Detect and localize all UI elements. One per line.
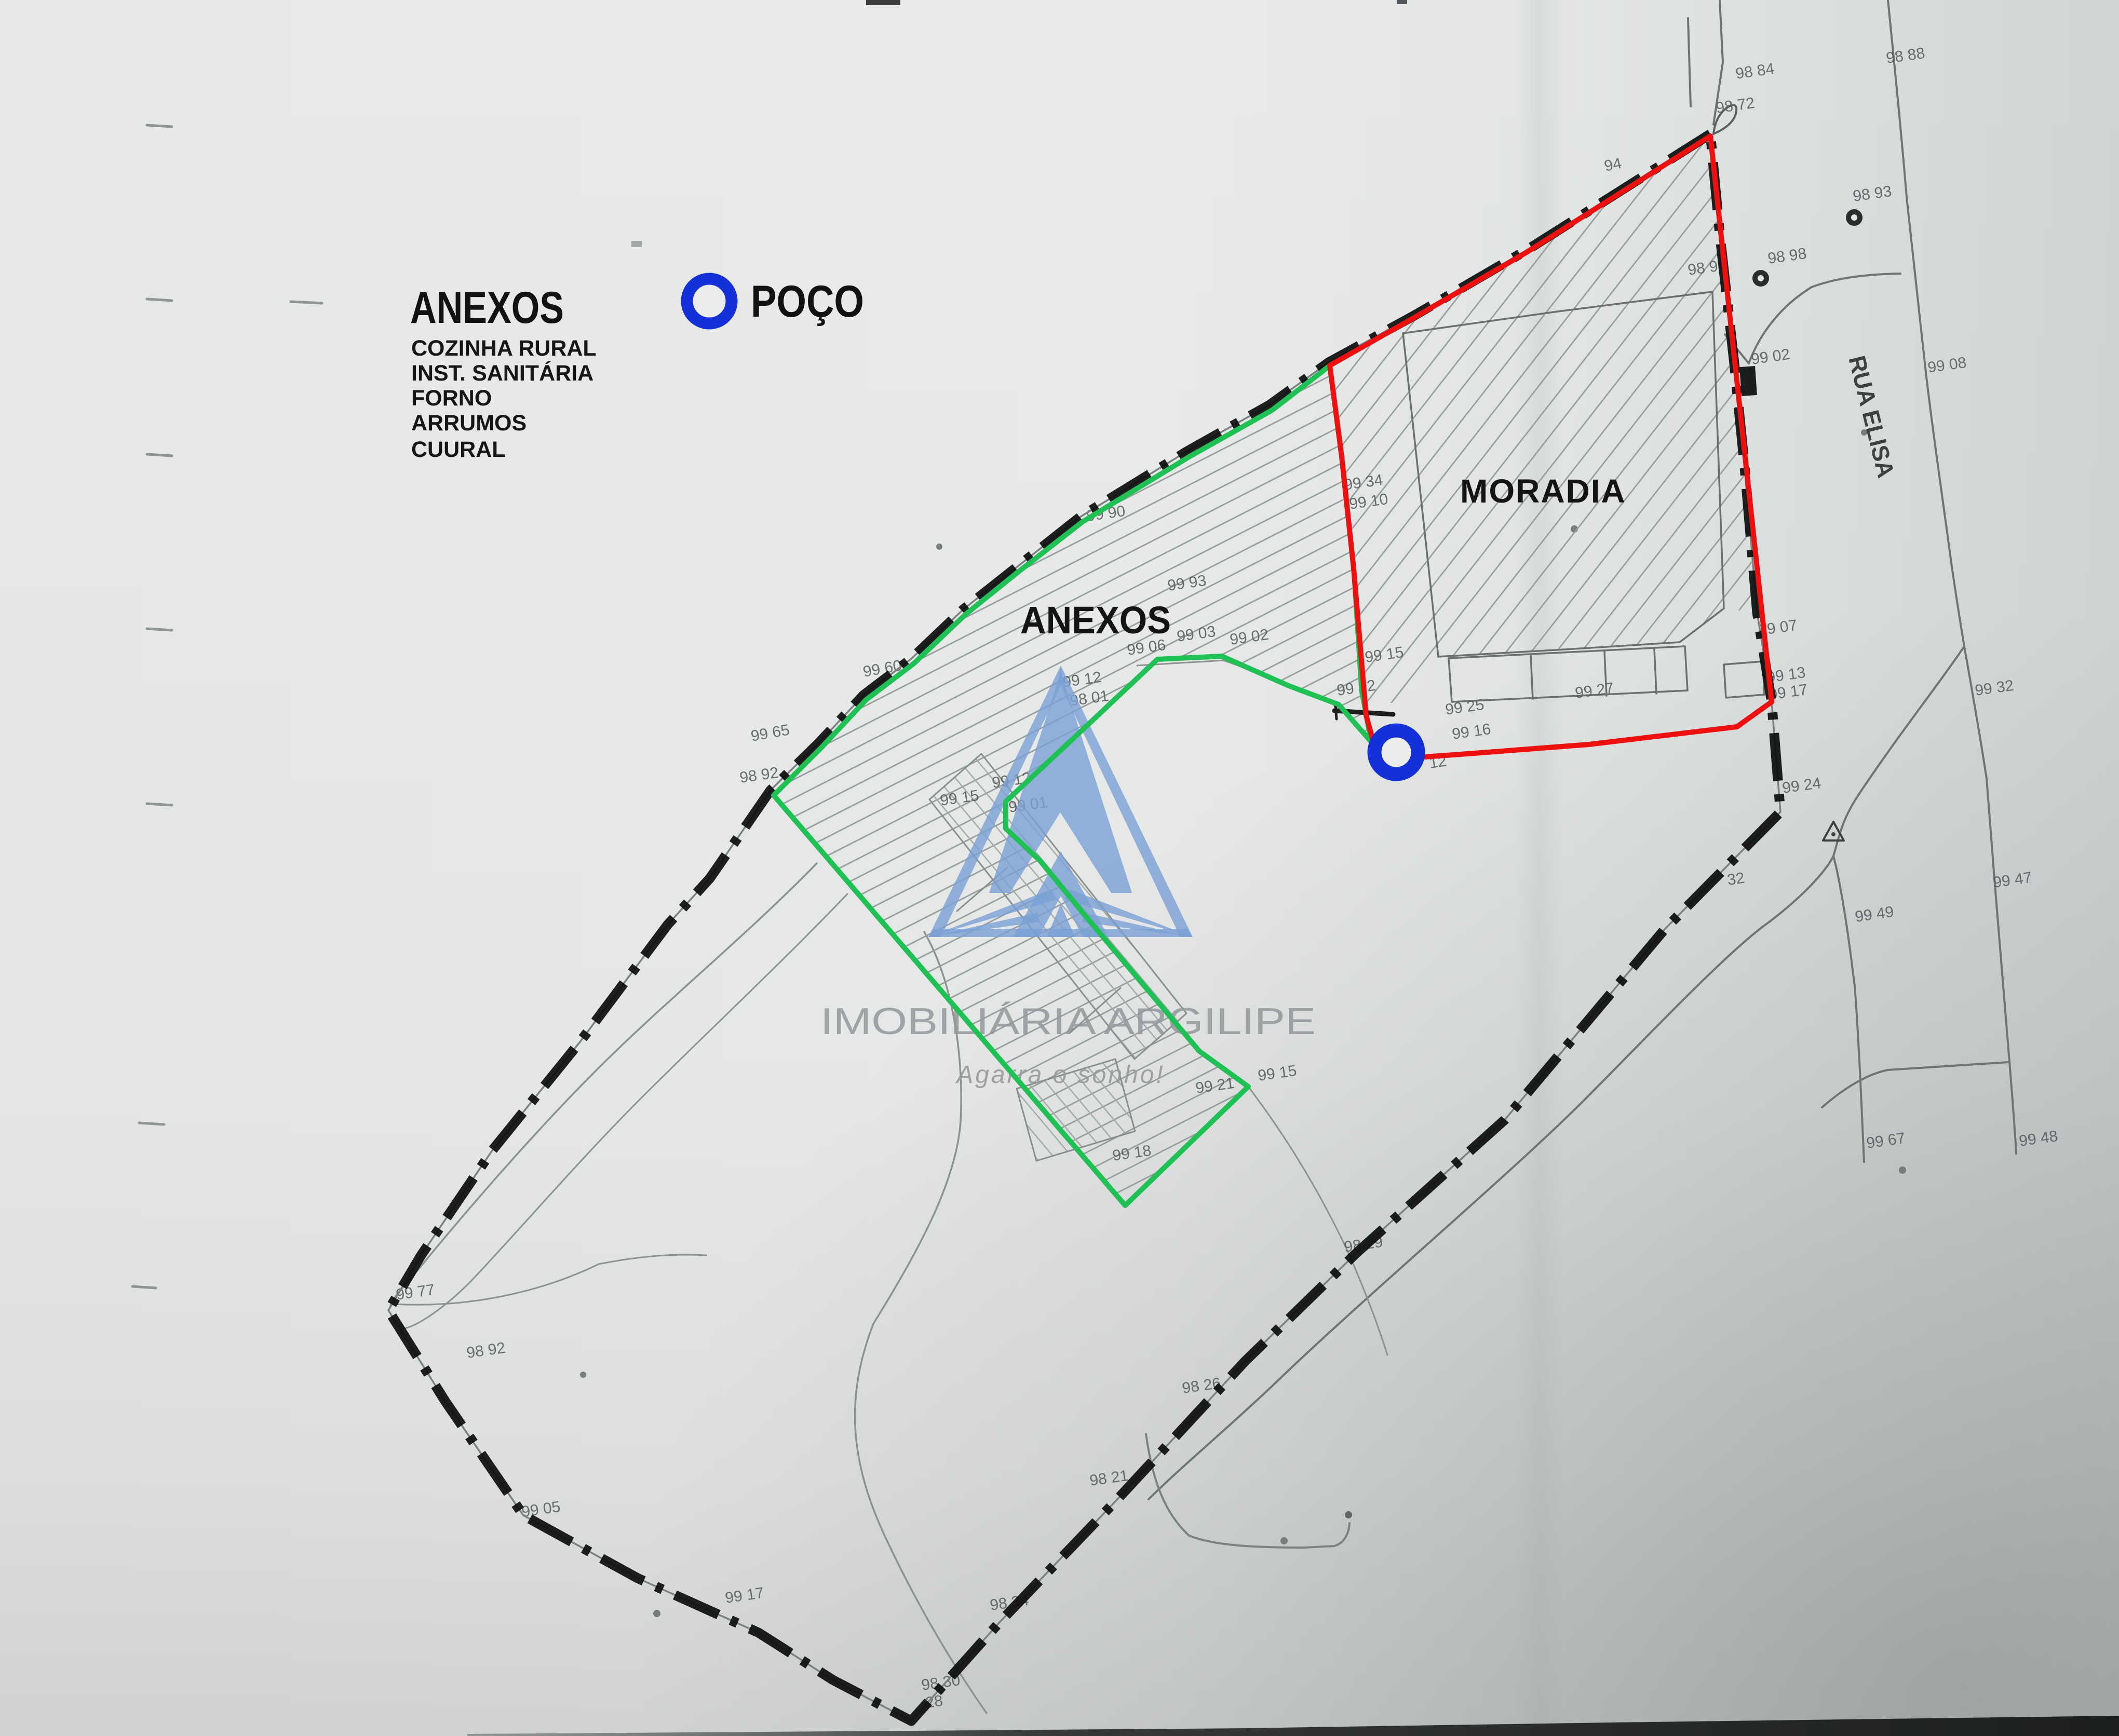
svg-text:INST. SANITÁRIA: INST. SANITÁRIA	[411, 361, 593, 386]
svg-text:ANEXOS: ANEXOS	[1020, 599, 1171, 642]
svg-text:FORNO: FORNO	[411, 386, 492, 411]
svg-text:COZINHA RURAL: COZINHA RURAL	[411, 336, 597, 361]
svg-text:Agarra o sonho!: Agarra o sonho!	[955, 1061, 1165, 1089]
svg-text:MORADIA: MORADIA	[1460, 472, 1626, 510]
svg-text:ARRUMOS: ARRUMOS	[411, 411, 527, 436]
svg-text:IMOBILIÁRIA ARGILIPE: IMOBILIÁRIA ARGILIPE	[820, 1001, 1316, 1042]
svg-text:ANEXOS: ANEXOS	[410, 283, 564, 333]
svg-text:POÇO: POÇO	[751, 277, 864, 327]
svg-text:CUURAL: CUURAL	[411, 437, 506, 462]
svg-text:94: 94	[1603, 155, 1624, 175]
svg-text:32: 32	[1726, 870, 1746, 889]
